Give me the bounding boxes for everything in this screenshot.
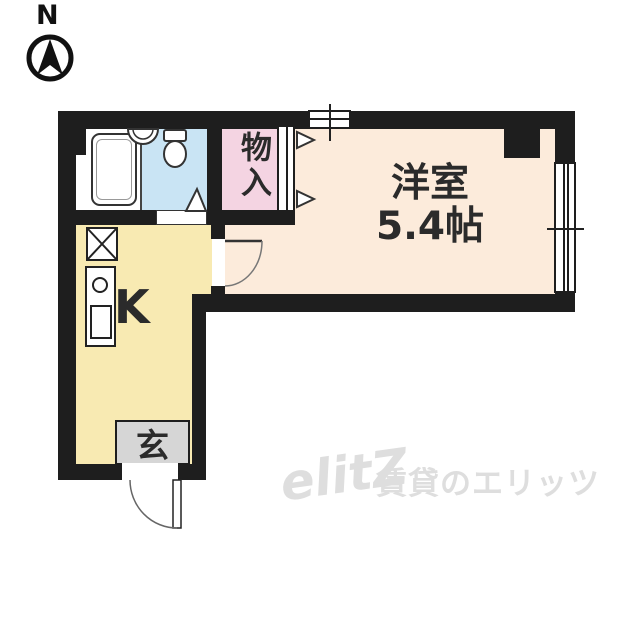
toilet-bowl-icon xyxy=(164,141,186,167)
plan-symbols-layer xyxy=(0,0,640,640)
floor-plan: N xyxy=(0,0,640,640)
bath-door-swing-icon xyxy=(186,189,206,211)
kitchen-label: K xyxy=(114,280,150,334)
kitchen-sink-icon xyxy=(91,306,111,338)
western-room-name: 洋室 xyxy=(320,163,540,206)
watermark-text: 賃貸のエリッツ xyxy=(376,458,600,503)
toilet-tank-icon xyxy=(164,130,186,141)
closet-door-arrow-icon xyxy=(297,132,314,148)
western-room-label: 洋室 5.4帖 xyxy=(320,163,540,249)
entrance-door-arc xyxy=(130,480,177,528)
entrance-label: 玄 xyxy=(115,421,190,464)
entrance-door-panel xyxy=(173,480,181,528)
burner-icon xyxy=(93,278,107,292)
room-door-arc xyxy=(225,241,262,286)
closet-door-arrow-icon xyxy=(297,191,314,207)
western-room-size: 5.4帖 xyxy=(320,206,540,249)
closet-label: 物入 xyxy=(231,131,276,201)
